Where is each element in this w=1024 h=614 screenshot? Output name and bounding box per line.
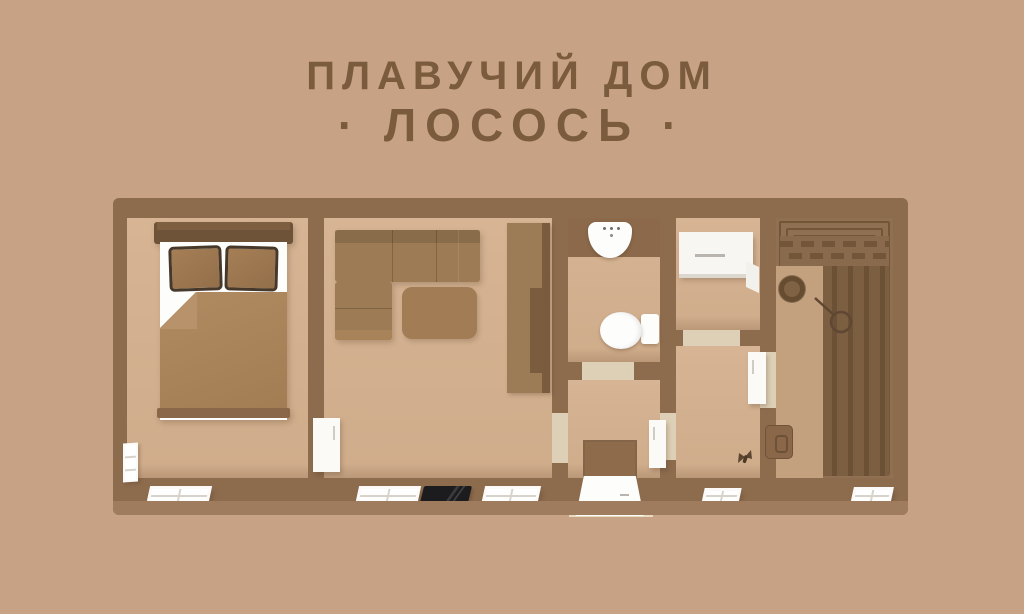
closet-handle [333,426,335,440]
house-foundation [113,501,908,515]
door-opening-bathroom [582,362,634,380]
wardrobe-inset [530,288,544,373]
entry-cabinet-handle [653,427,655,440]
sofa-chaise-section [335,282,392,340]
sofa-long-section [335,230,480,282]
coffee-table [402,287,477,339]
deck-plank-ends [780,236,889,266]
terrace-floor [776,218,893,478]
deck-hook-icon [811,294,855,338]
kitchen-counter-handle [695,254,725,257]
pillow-left [168,245,223,292]
pillow-right [224,245,278,291]
door-opening-kitchen [683,330,740,346]
deck-planks [821,236,889,476]
bed-blanket [160,292,287,410]
title-line-1: ПЛАВУЧИЙ ДОМ [0,54,1024,98]
bedroom-side-window [123,442,138,482]
entrance-door-handle [620,494,629,496]
sink-faucet [610,227,613,230]
kitchen-counter [679,232,753,274]
kitchen-counter-return [746,261,759,293]
entry-doormat [583,440,637,478]
poster-floorplan: ПЛАВУЧИЙ ДОМ · ЛОСОСЬ · [0,0,1024,614]
terrace-door-handle [775,435,788,453]
floorplan [113,198,908,515]
living-closet [313,418,340,472]
wall-hook-icon [737,446,753,466]
toilet-tank [641,314,659,344]
deck-round-stool [779,276,805,302]
bed-headboard [154,222,293,244]
bed-footboard [157,408,290,418]
hallway-cabinet [748,352,766,404]
page-title: ПЛАВУЧИЙ ДОМ · ЛОСОСЬ · [0,54,1024,150]
living-wardrobe [507,223,550,393]
terrace-door [765,425,793,459]
entry-cabinet [649,420,666,468]
door-opening-living-entry [552,413,568,463]
hallway-cabinet-handle [752,360,754,374]
toilet-bowl [600,312,642,349]
title-line-2: · ЛОСОСЬ · [0,100,1024,150]
double-bed [157,222,290,418]
